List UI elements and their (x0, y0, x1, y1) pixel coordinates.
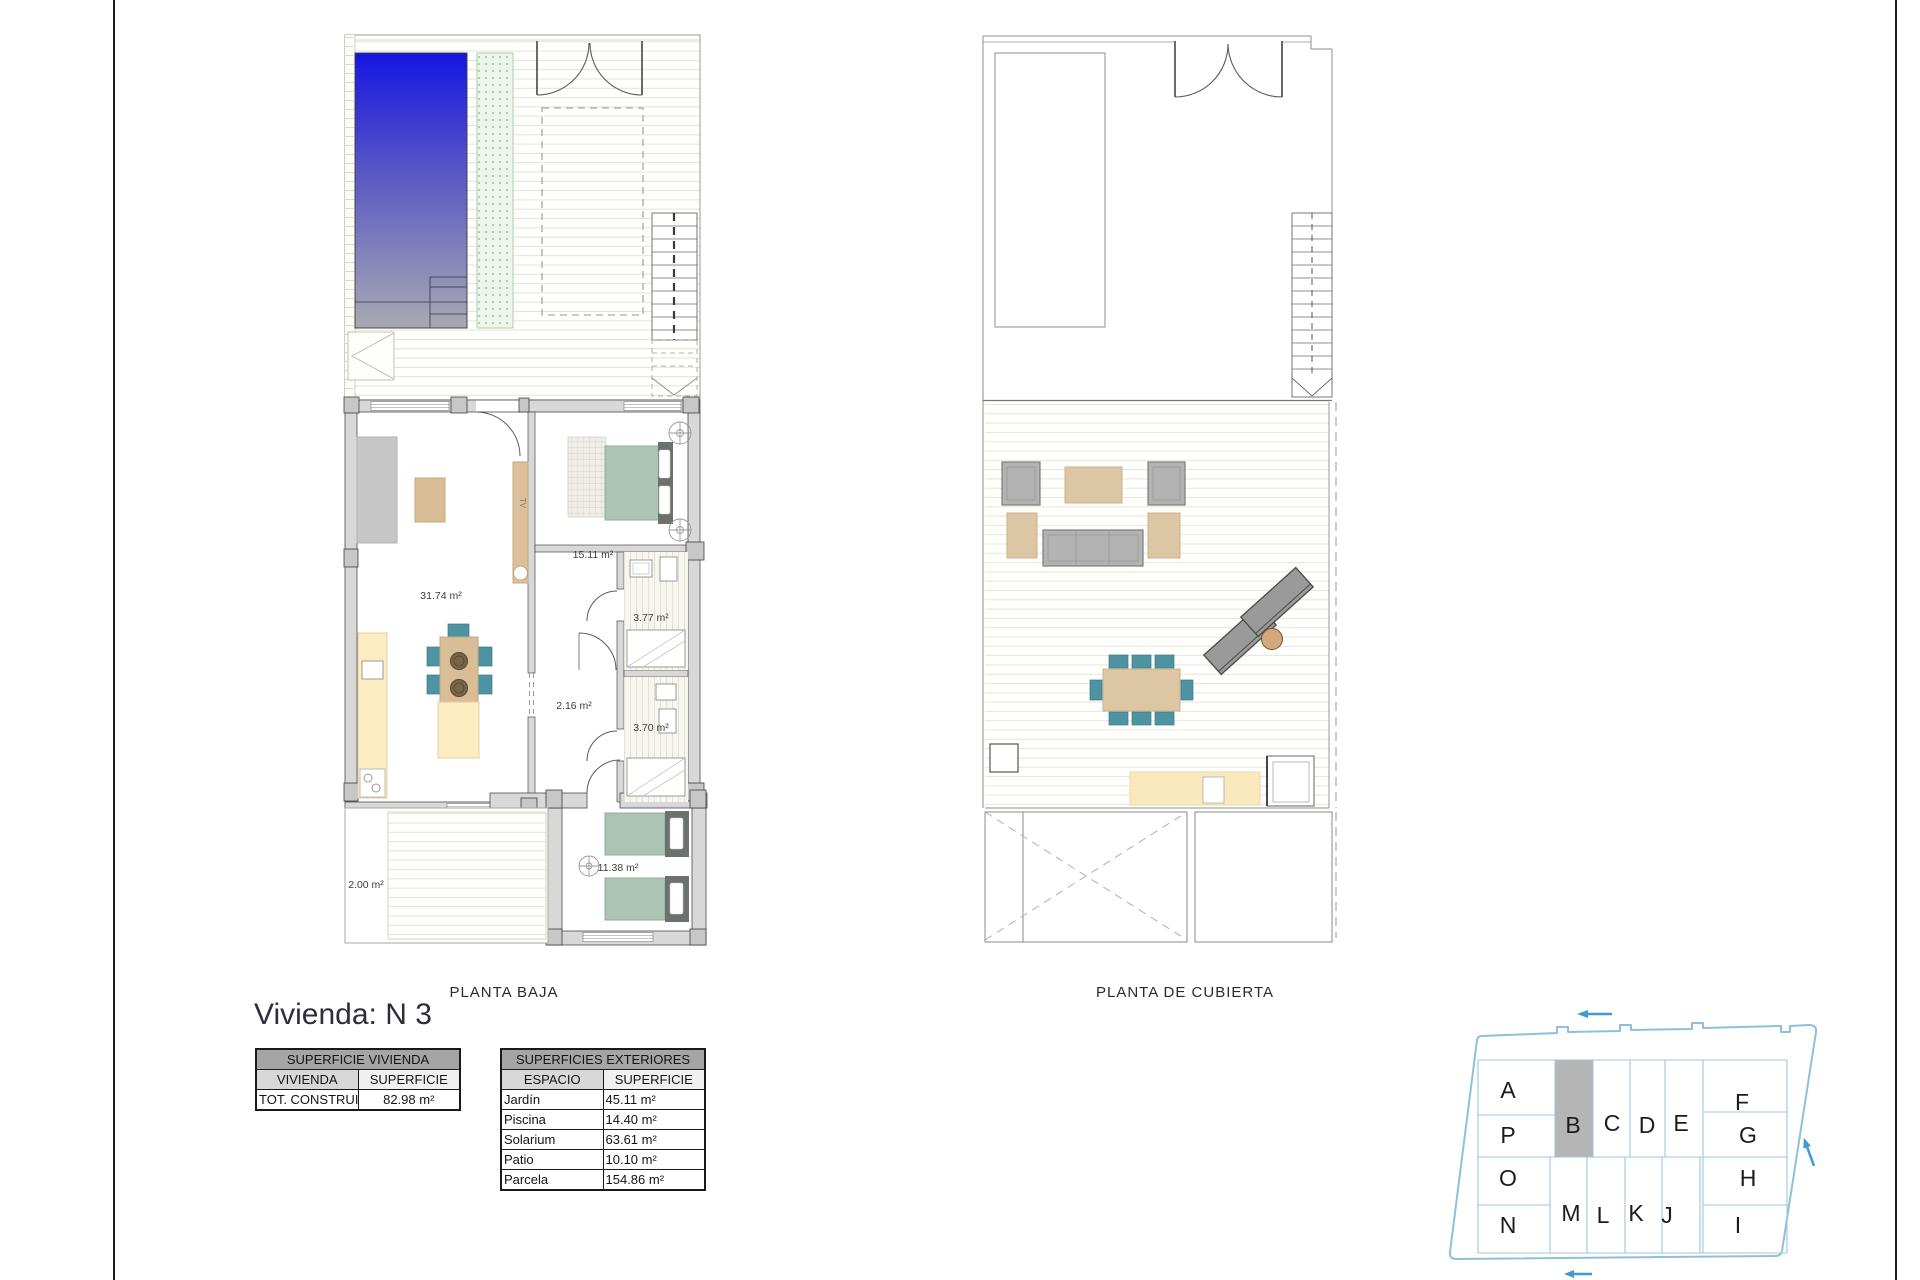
unit-label: C (1604, 1110, 1621, 1136)
table-row: Patio 10.10 m² (501, 1150, 705, 1170)
unit-label: O (1499, 1165, 1517, 1191)
area-label-bath1: 3.77 m² (633, 612, 669, 624)
unit-label: L (1597, 1202, 1610, 1228)
window (624, 402, 681, 411)
sofa (1043, 530, 1143, 566)
planting-strip (477, 53, 513, 328)
area-label-hall: 2.16 m² (556, 700, 592, 712)
table-row: Piscina 14.40 m² (501, 1110, 705, 1130)
armchair (1148, 462, 1185, 505)
column-header: SUPERFICIE (603, 1070, 705, 1090)
table-row: Parcela 154.86 m² (501, 1170, 705, 1191)
pillow (659, 486, 670, 514)
table-title: SUPERFICIES EXTERIORES (501, 1049, 705, 1070)
toilet (660, 557, 677, 581)
pool-void-outline (995, 53, 1105, 327)
area-label-living: 31.74 m² (420, 590, 462, 602)
column-header: VIVIENDA (256, 1070, 358, 1090)
unit-label: M (1561, 1200, 1580, 1226)
unit-label: F (1735, 1089, 1749, 1115)
highlighted-unit-cell (1555, 1060, 1593, 1157)
pillow (670, 883, 683, 914)
patio: 2.00 m² (345, 808, 548, 943)
unit-label: E (1673, 1110, 1688, 1136)
bathroom-2: 3.70 m² (624, 677, 688, 802)
side-table (1262, 629, 1283, 650)
floorplan-planta-baja: TV (343, 33, 707, 953)
ceiling-fan-icon (669, 519, 691, 541)
window (371, 402, 449, 411)
unit-label: A (1500, 1077, 1516, 1103)
table-row: Solarium 63.61 m² (501, 1130, 705, 1150)
kitchen-counter (358, 633, 387, 798)
column-header: ESPACIO (501, 1070, 603, 1090)
arrow-icon (1564, 1270, 1592, 1278)
tv-label: TV (518, 498, 527, 509)
cooktop (360, 769, 385, 797)
front-door-swing (476, 412, 520, 456)
living-kitchen: TV (357, 437, 528, 798)
rug (568, 437, 606, 517)
unit-label: G (1739, 1122, 1757, 1148)
shower (627, 758, 685, 796)
unit-label: H (1740, 1165, 1757, 1191)
kitchen-island (438, 702, 479, 758)
garden (345, 35, 700, 400)
kitchen-sink (362, 661, 383, 679)
tv-cabinet: TV (513, 462, 528, 583)
pouf (1148, 513, 1180, 558)
bedroom-2: 11.38 m² (579, 811, 689, 922)
siteplan-key: A B C D E F G H I J K L M N O P (1440, 1002, 1870, 1280)
sofa (357, 437, 397, 543)
roof-lower-section (985, 812, 1336, 942)
floorplan-planta-cubierta (981, 33, 1341, 953)
table-title: SUPERFICIE VIVIENDA (256, 1049, 460, 1070)
page-border-left (113, 0, 115, 1280)
unit-label: I (1735, 1212, 1741, 1238)
front-door-opening (476, 401, 520, 412)
table-row: TOT. CONSTRUIDA 82.98 m² (256, 1090, 460, 1111)
dining-table (1103, 669, 1180, 711)
roof-stairs (1292, 213, 1332, 397)
direction-arrows (1564, 1010, 1818, 1278)
unit-label: D (1639, 1112, 1656, 1138)
area-label-bedroom1: 15.11 m² (573, 549, 614, 561)
armchair (1002, 462, 1040, 505)
pillow (659, 450, 670, 478)
page-title: Vivienda: N 3 (254, 998, 432, 1032)
dining-set (427, 624, 492, 758)
bedroom-1: 15.11 m² (568, 422, 691, 561)
unit-label: N (1500, 1212, 1517, 1238)
coffee-table (415, 478, 445, 522)
pool-shower-pad (348, 332, 394, 380)
unit-label: P (1500, 1122, 1515, 1148)
pillow (670, 818, 683, 849)
interior-door-swings (579, 591, 620, 793)
bathroom-1: 3.77 m² (624, 552, 688, 670)
page-border-right (1895, 0, 1897, 1280)
table-superficie-vivienda: SUPERFICIE VIVIENDA VIVIENDA SUPERFICIE … (255, 1048, 461, 1111)
area-label-bath2: 3.70 m² (633, 722, 669, 734)
pouf (1007, 513, 1037, 558)
arrow-icon (1800, 1136, 1818, 1167)
caption-planta-cubierta: PLANTA DE CUBIERTA (1035, 984, 1335, 1001)
unit-label: B (1565, 1112, 1580, 1138)
column-header: SUPERFICIE (358, 1070, 460, 1090)
swimming-pool (355, 53, 467, 328)
roof-terrace (983, 401, 1336, 809)
roof-entrance-double-door (1175, 41, 1282, 97)
outdoor-kitchen-counter (1130, 772, 1260, 805)
table-row: Jardín 45.11 m² (501, 1090, 705, 1110)
single-bed (605, 878, 665, 920)
coffee-table (1065, 467, 1122, 503)
area-label-patio: 2.00 m² (348, 879, 384, 891)
stair-enclosure (1267, 756, 1314, 806)
planter-box (990, 744, 1018, 772)
area-label-bedroom2: 11.38 m² (598, 862, 639, 874)
ceiling-fan-icon (669, 422, 691, 444)
ceiling-fan-icon (579, 856, 599, 876)
arrow-icon (1577, 1010, 1612, 1018)
unit-label: J (1661, 1202, 1673, 1228)
sink (1203, 777, 1224, 803)
single-bed (605, 813, 665, 855)
double-bed (605, 446, 660, 520)
shower (627, 630, 685, 667)
sink (656, 684, 676, 700)
table-superficies-exteriores: SUPERFICIES EXTERIORES ESPACIO SUPERFICI… (500, 1048, 706, 1191)
plan-sheet: TV (0, 0, 1920, 1280)
window (583, 933, 653, 942)
unit-label: K (1628, 1200, 1644, 1226)
